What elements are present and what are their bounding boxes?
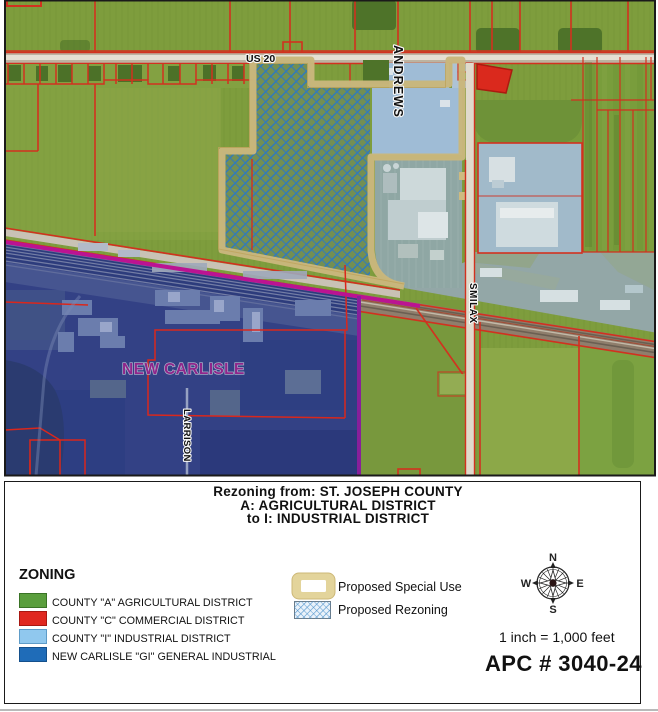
svg-text:W: W (521, 578, 532, 590)
svg-text:S: S (549, 604, 556, 616)
svg-text:N: N (549, 552, 557, 564)
svg-text:E: E (576, 578, 583, 590)
